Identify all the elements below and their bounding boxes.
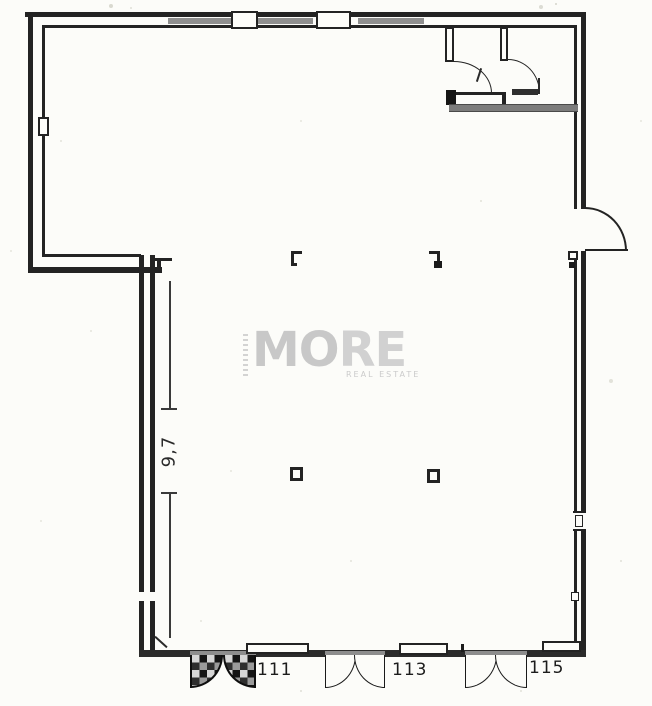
watermark-vertical-text [243,334,248,376]
dimension-line [169,492,171,638]
wall-pier [446,90,456,105]
entrance-door-leaf [223,655,256,688]
watermark-letter: R [339,330,375,370]
entrance-door-leaf [190,655,223,688]
watermark-letter: O [299,330,339,370]
interior-wall-stub [500,27,508,61]
watermark: M O R E REAL ESTATE [238,328,423,382]
wall-notch-foot [569,262,575,268]
watermark-subtitle: REAL ESTATE [346,370,420,379]
wall-connector [157,258,161,270]
outer-wall-right [581,531,586,657]
window-band [168,18,232,24]
dimension-tick [161,492,177,494]
interior-wall-stub [445,27,454,62]
exterior-door-swing-arc [585,207,627,251]
inner-wall-right [574,251,577,513]
exterior-door-leaf [585,249,628,251]
window-mullion [231,11,258,29]
wall-panel [542,641,581,652]
wall-notch [38,117,49,136]
unit-label-113: 113 [392,660,427,680]
inner-wall-top [42,25,577,28]
annex-bottom-wall-inner [42,254,141,257]
wall-notch [568,251,578,260]
floor-plan-canvas: 9,7 M O R E REAL ESTATE [0,0,652,706]
inner-wall-left [42,25,45,257]
wall-tick [461,644,464,652]
wall-joint-gap [133,592,180,601]
wall-window [575,515,583,527]
wall-panel [246,643,309,654]
window-mullion [316,11,351,29]
outer-wall-right [581,251,586,513]
wall-panel [399,643,448,655]
watermark-letter: E [375,330,407,370]
dimension-line [169,281,171,409]
door-leaf-tick [538,78,540,94]
outer-wall-left [28,12,33,272]
interior-door-swing-arc [454,61,492,93]
unit-label-111: 111 [257,660,292,680]
interior-door-swing-arc [508,59,540,93]
inner-wall-right [574,25,577,209]
door-leaf [354,655,385,688]
window-band [358,18,424,24]
door-leaf [465,655,497,688]
dimension-tick [161,408,177,410]
wall-jog [571,592,579,601]
wall-window-frame [573,529,586,531]
paper-noise-speckles [0,0,2,2]
interior-wall-segment [512,89,538,95]
watermark-letter: M [252,330,299,370]
interior-wall [455,92,502,95]
unit-label-115: 115 [529,658,564,678]
door-leaf [495,655,527,688]
column-marker-tick [291,263,297,266]
outer-wall-right [581,12,586,209]
column-square [427,469,440,483]
wall-window-frame [573,511,586,513]
window-band [258,18,313,24]
corner-hatch [154,636,167,648]
lintel-beam [449,104,578,112]
column-square [290,467,303,481]
door-leaf [325,655,356,688]
dimension-label: 9,7 [150,420,188,482]
interior-wall-stub [502,92,506,104]
outer-wall-top [25,12,586,17]
column-marker-foot [434,261,442,268]
watermark-wordmark: M O R E [252,330,406,370]
inner-wall-right [574,531,577,643]
